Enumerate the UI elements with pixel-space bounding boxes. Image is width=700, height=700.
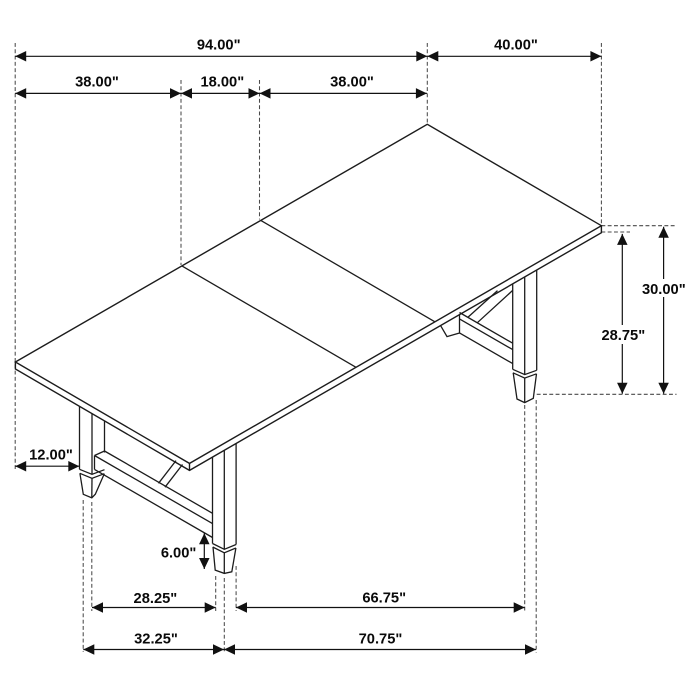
svg-text:40.00": 40.00" bbox=[494, 38, 538, 54]
svg-text:28.75": 28.75" bbox=[601, 328, 645, 344]
svg-text:32.25": 32.25" bbox=[134, 632, 178, 648]
svg-text:94.00": 94.00" bbox=[197, 38, 241, 54]
svg-text:30.00": 30.00" bbox=[642, 282, 686, 298]
svg-text:38.00": 38.00" bbox=[330, 75, 374, 91]
svg-text:12.00": 12.00" bbox=[29, 448, 73, 464]
svg-text:18.00": 18.00" bbox=[200, 75, 244, 91]
svg-text:28.25": 28.25" bbox=[134, 591, 178, 607]
svg-text:70.75": 70.75" bbox=[359, 632, 403, 648]
svg-text:6.00": 6.00" bbox=[161, 546, 197, 562]
svg-text:66.75": 66.75" bbox=[362, 591, 406, 607]
svg-text:38.00": 38.00" bbox=[75, 75, 119, 91]
